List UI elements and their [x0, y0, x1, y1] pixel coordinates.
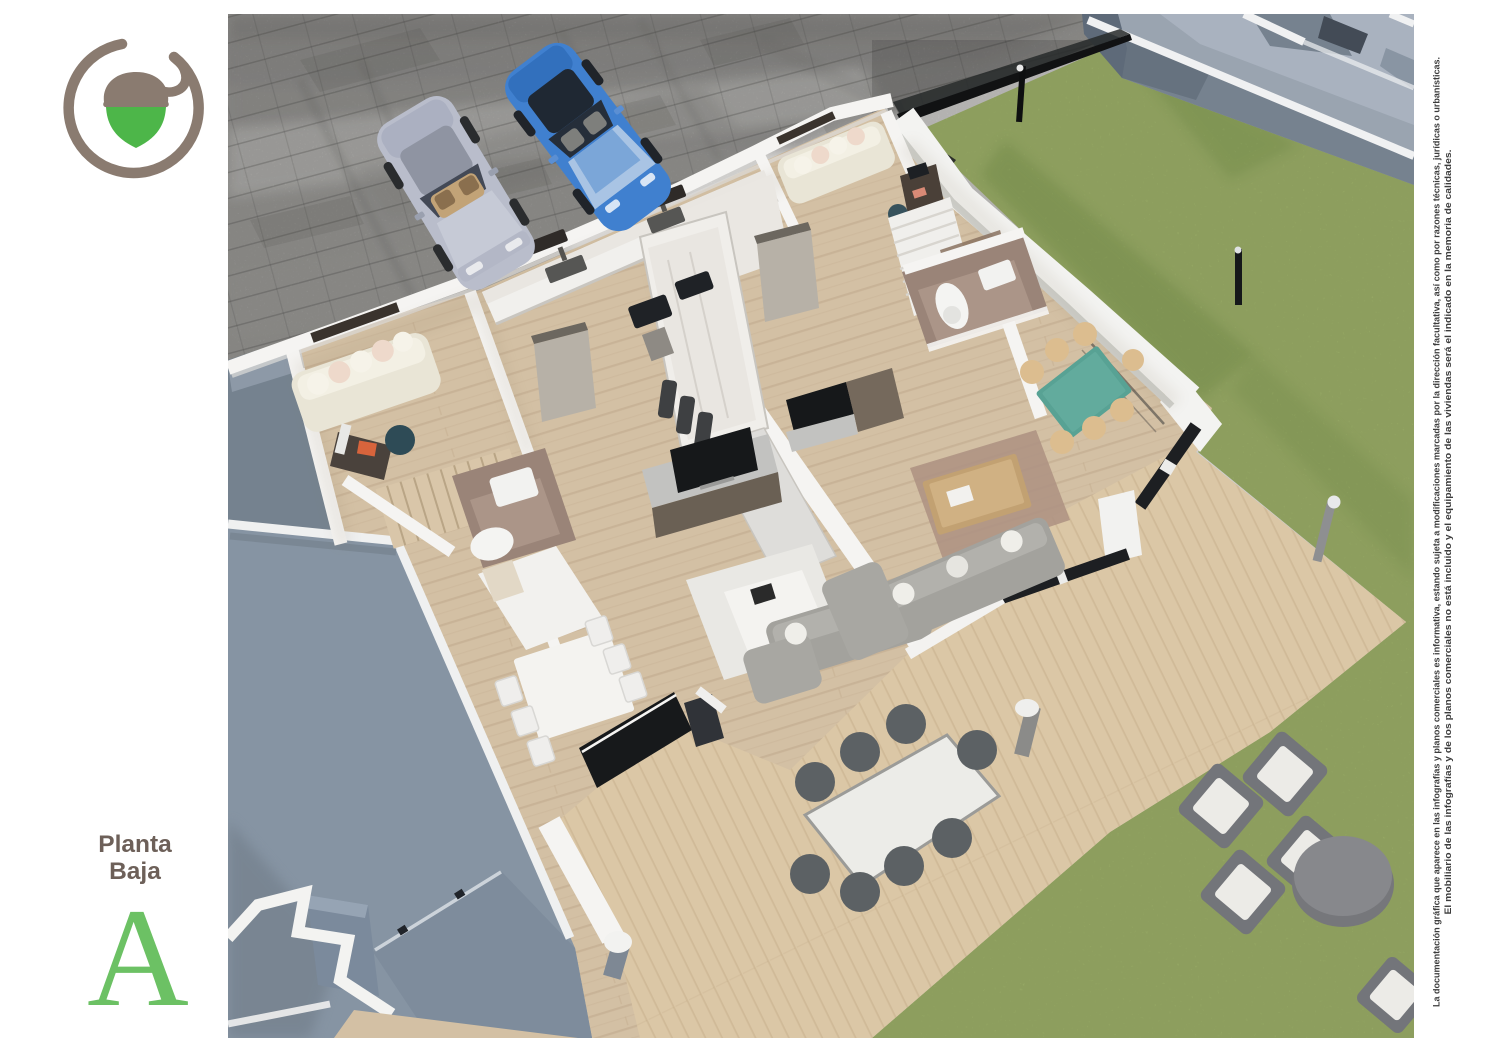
svg-text:El mobiliario de las infografí: El mobiliario de las infografías y de lo…: [1443, 149, 1453, 914]
svg-text:A: A: [87, 880, 189, 1036]
svg-text:Planta: Planta: [98, 831, 172, 858]
svg-text:La documentación gráfica que a: La documentación gráfica que aparece en …: [1432, 57, 1442, 1007]
